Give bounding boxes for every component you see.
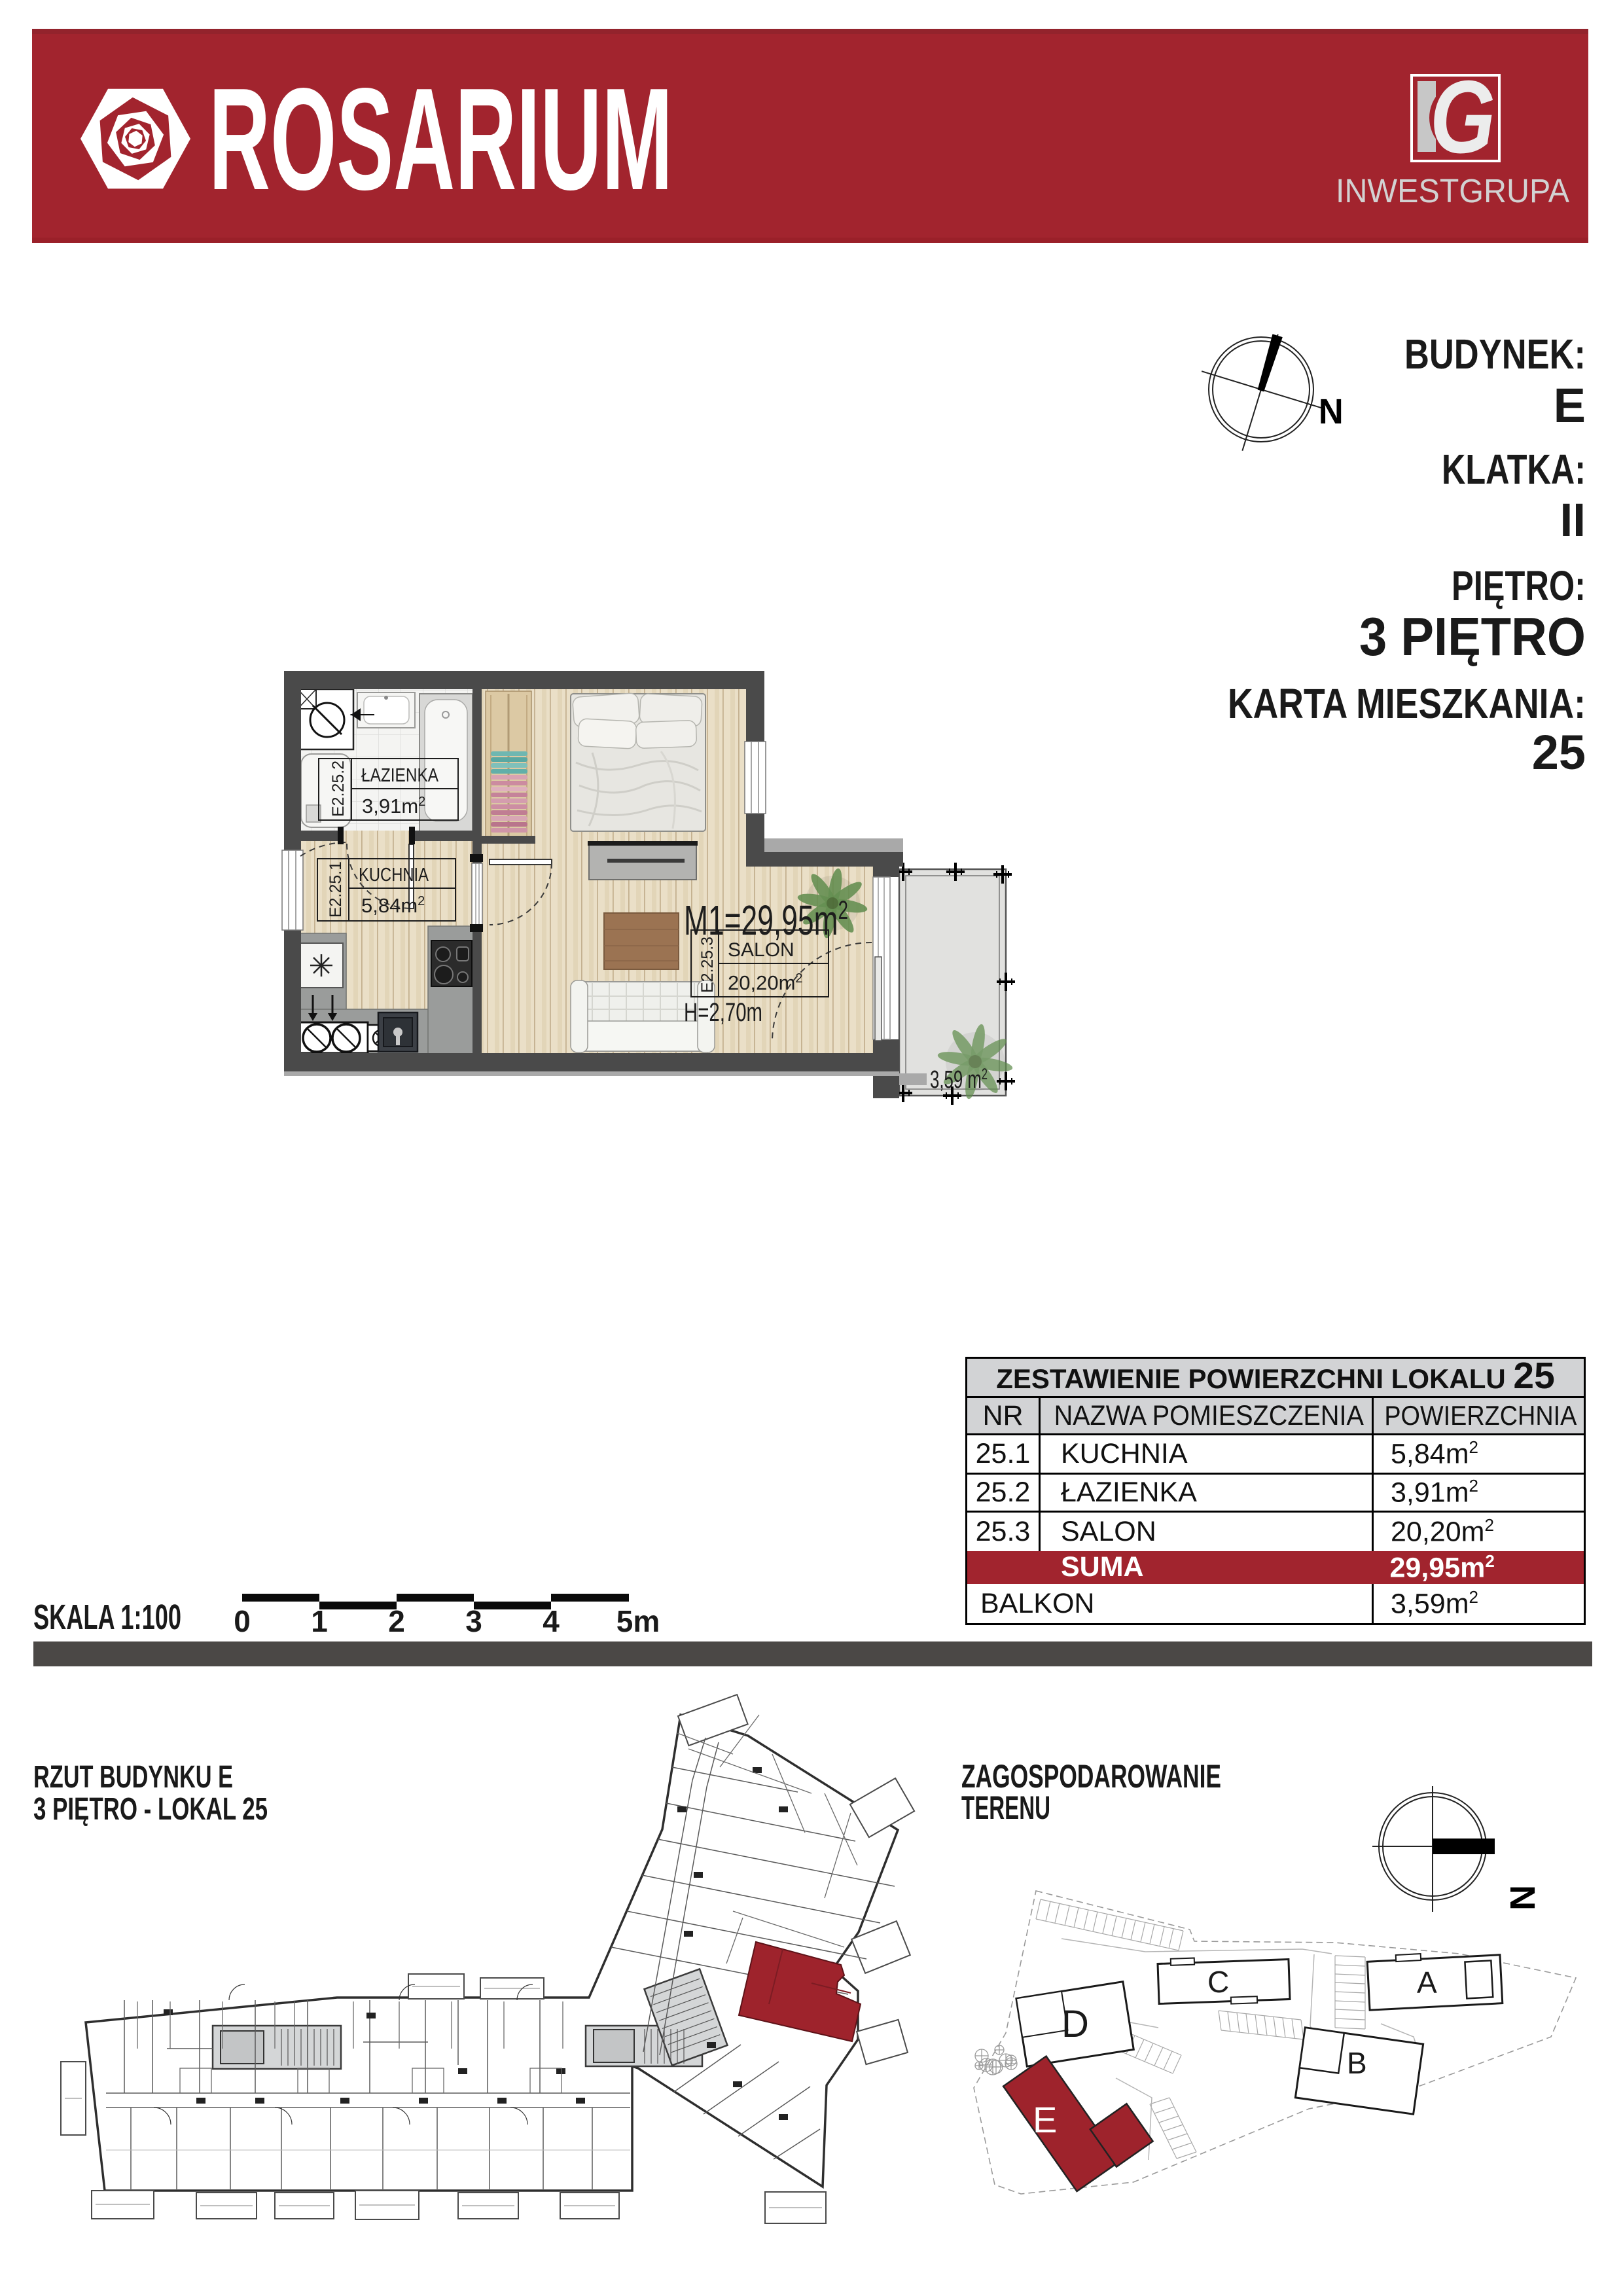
svg-text:E2.25.2: E2.25.2 xyxy=(329,761,348,817)
svg-text:TERENU: TERENU xyxy=(961,1789,1050,1826)
svg-text:D: D xyxy=(1061,2003,1089,2045)
svg-text:M1=29,95m2: M1=29,95m2 xyxy=(684,896,848,944)
svg-text:INWESTGRUPA: INWESTGRUPA xyxy=(1336,172,1569,209)
svg-text:G: G xyxy=(1430,60,1495,175)
svg-text:5,84m2: 5,84m2 xyxy=(361,894,425,917)
svg-text:1: 1 xyxy=(311,1604,328,1638)
svg-text:25: 25 xyxy=(1532,725,1586,780)
svg-text:KARTA MIESZKANIA:: KARTA MIESZKANIA: xyxy=(1228,680,1586,727)
svg-text:KUCHNIA: KUCHNIA xyxy=(359,865,429,886)
svg-text:3,91m2: 3,91m2 xyxy=(362,795,425,817)
svg-text:E2.25.3: E2.25.3 xyxy=(698,937,717,993)
svg-text:5m: 5m xyxy=(616,1604,660,1638)
svg-text:3 PIĘTRO: 3 PIĘTRO xyxy=(1359,606,1586,667)
svg-text:H=2,70m: H=2,70m xyxy=(684,998,762,1027)
svg-text:3: 3 xyxy=(465,1604,482,1638)
svg-text:4: 4 xyxy=(543,1604,560,1638)
svg-text:0: 0 xyxy=(234,1604,251,1638)
svg-text:C: C xyxy=(1207,1965,1229,1999)
svg-text:E: E xyxy=(1033,2099,1057,2140)
svg-text:PIĘTRO:: PIĘTRO: xyxy=(1452,562,1586,609)
svg-text:KLATKA:: KLATKA: xyxy=(1442,446,1586,493)
svg-text:SKALA 1:100: SKALA 1:100 xyxy=(33,1598,181,1637)
svg-text:E: E xyxy=(1554,378,1586,433)
svg-text:A: A xyxy=(1417,1965,1437,2000)
svg-text:20,20m2: 20,20m2 xyxy=(728,971,803,994)
svg-text:E2.25.1: E2.25.1 xyxy=(327,861,345,918)
svg-text:B: B xyxy=(1347,2046,1367,2080)
svg-text:BUDYNEK:: BUDYNEK: xyxy=(1404,331,1586,378)
svg-text:II: II xyxy=(1560,495,1586,547)
svg-text:3,59 m2: 3,59 m2 xyxy=(930,1066,988,1094)
svg-text:2: 2 xyxy=(388,1604,405,1638)
svg-text:ROSARIUM: ROSARIUM xyxy=(209,58,673,221)
svg-text:ŁAZIENKA: ŁAZIENKA xyxy=(361,765,439,786)
